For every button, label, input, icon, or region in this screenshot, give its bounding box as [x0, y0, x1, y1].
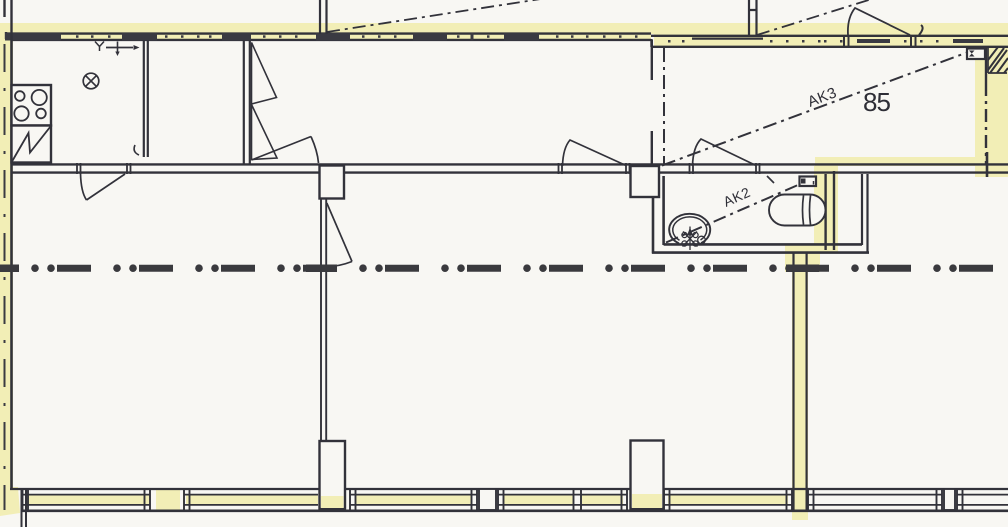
svg-text:85: 85: [863, 87, 890, 117]
